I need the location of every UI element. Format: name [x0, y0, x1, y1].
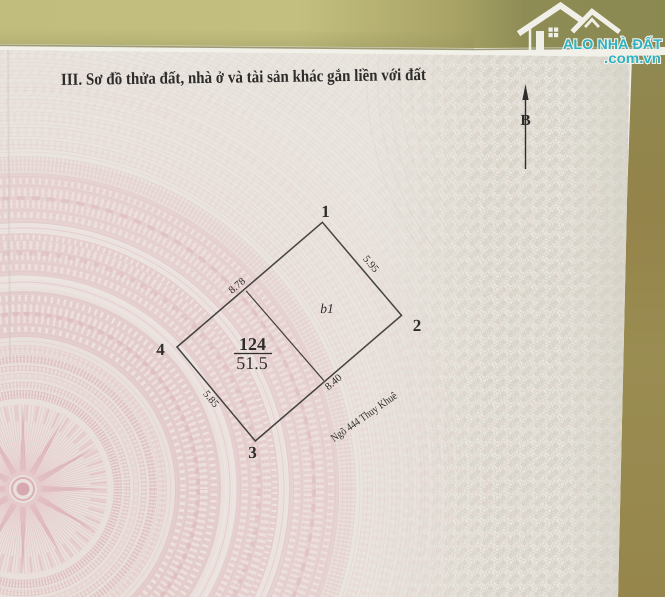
svg-text:B: B [520, 112, 530, 129]
svg-text:1: 1 [321, 202, 330, 221]
svg-text:51.5: 51.5 [236, 353, 268, 373]
svg-text:.com.vn: .com.vn [604, 50, 661, 66]
svg-text:3: 3 [248, 443, 257, 462]
svg-text:2: 2 [413, 316, 422, 335]
svg-text:4: 4 [156, 340, 165, 359]
svg-text:124: 124 [239, 334, 266, 354]
svg-text:b1: b1 [320, 301, 334, 316]
